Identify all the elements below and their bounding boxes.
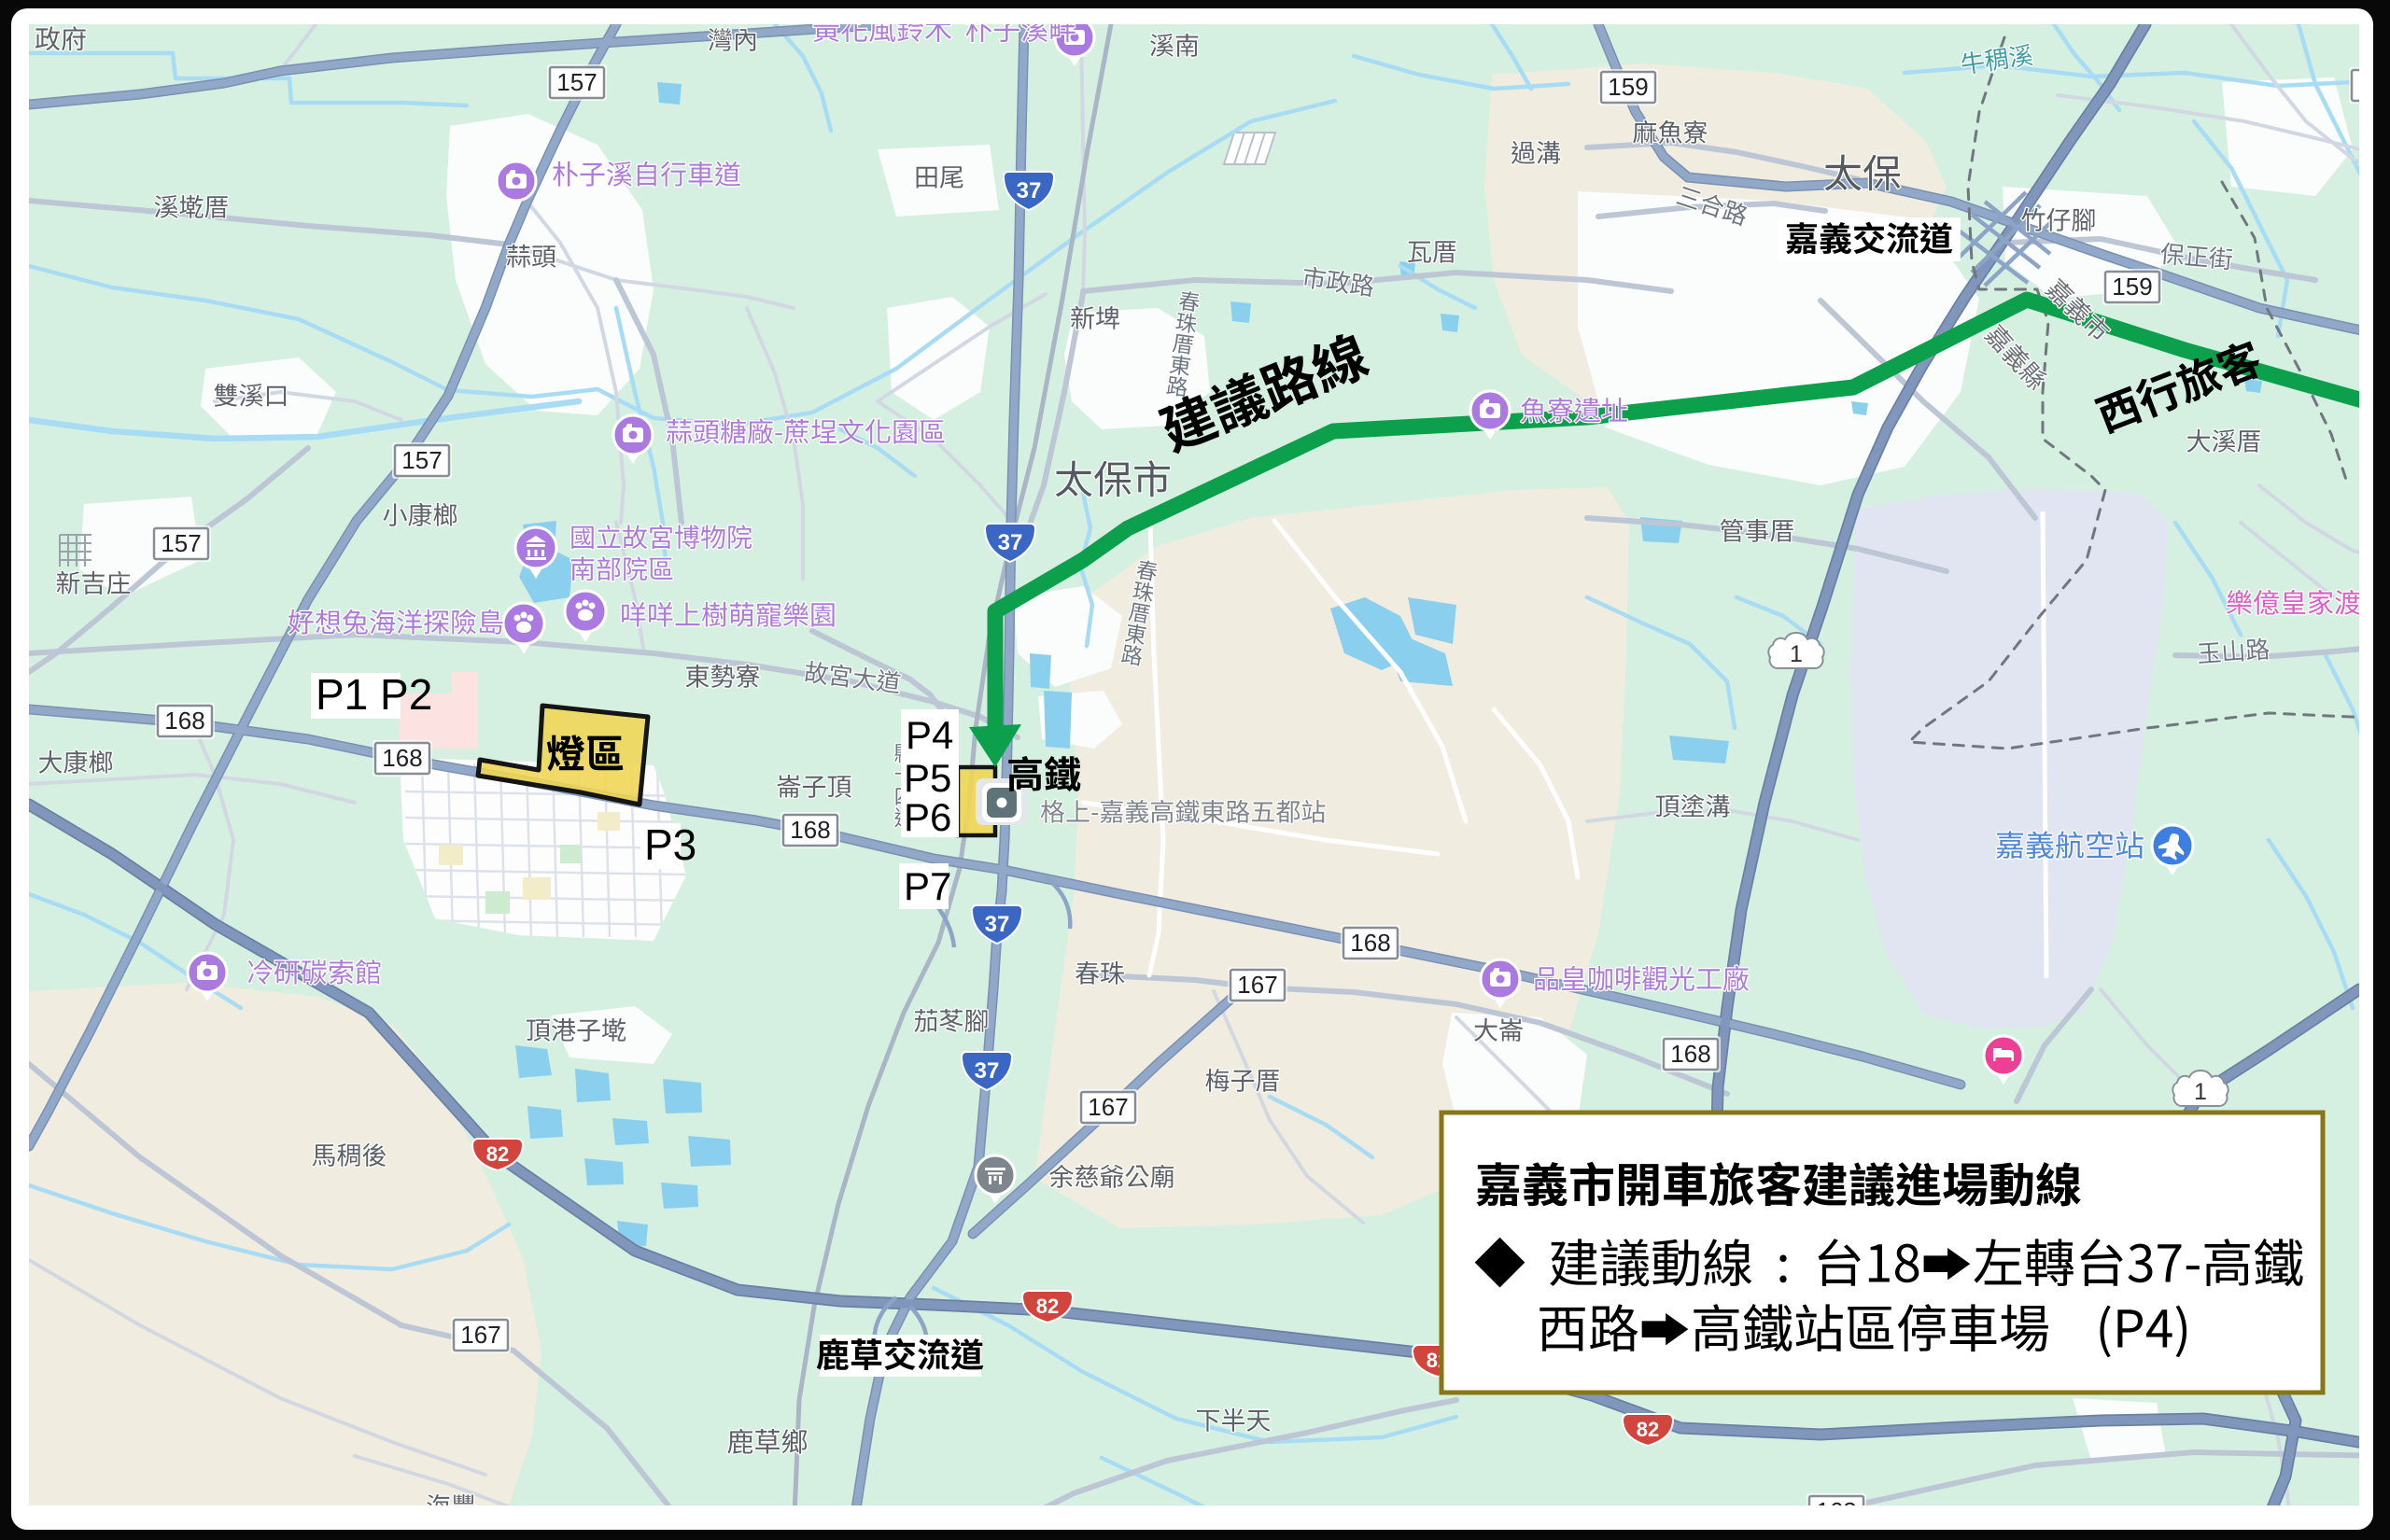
svg-text:168: 168 — [1670, 1040, 1710, 1068]
svg-text:168: 168 — [164, 707, 204, 735]
svg-text:167: 167 — [460, 1321, 500, 1349]
svg-text:37: 37 — [975, 1058, 1000, 1084]
svg-text:P1 P2: P1 P2 — [316, 670, 432, 719]
svg-text:82: 82 — [1036, 1295, 1059, 1318]
svg-text:P6: P6 — [904, 795, 951, 839]
svg-text:37: 37 — [1017, 178, 1042, 203]
svg-text:82: 82 — [486, 1142, 509, 1166]
svg-text:82: 82 — [1637, 1418, 1659, 1441]
svg-text:159: 159 — [1608, 73, 1648, 101]
svg-text:167: 167 — [1088, 1093, 1128, 1121]
svg-text:157: 157 — [161, 529, 201, 557]
svg-text:37: 37 — [998, 530, 1023, 555]
svg-text:157: 157 — [556, 68, 597, 96]
svg-text:37: 37 — [985, 912, 1010, 937]
svg-text:P7: P7 — [904, 864, 951, 908]
svg-text:167: 167 — [1237, 971, 1277, 999]
svg-text:168: 168 — [790, 816, 830, 844]
svg-text:1: 1 — [1790, 641, 1803, 667]
svg-text:168: 168 — [382, 744, 422, 772]
svg-text:1: 1 — [2194, 1079, 2207, 1105]
svg-text:P5: P5 — [904, 756, 951, 800]
svg-text:168: 168 — [1350, 929, 1390, 957]
svg-text:P4: P4 — [906, 713, 953, 757]
svg-text:159: 159 — [2112, 273, 2152, 301]
svg-text:P3: P3 — [644, 820, 696, 869]
svg-text:157: 157 — [401, 446, 442, 474]
